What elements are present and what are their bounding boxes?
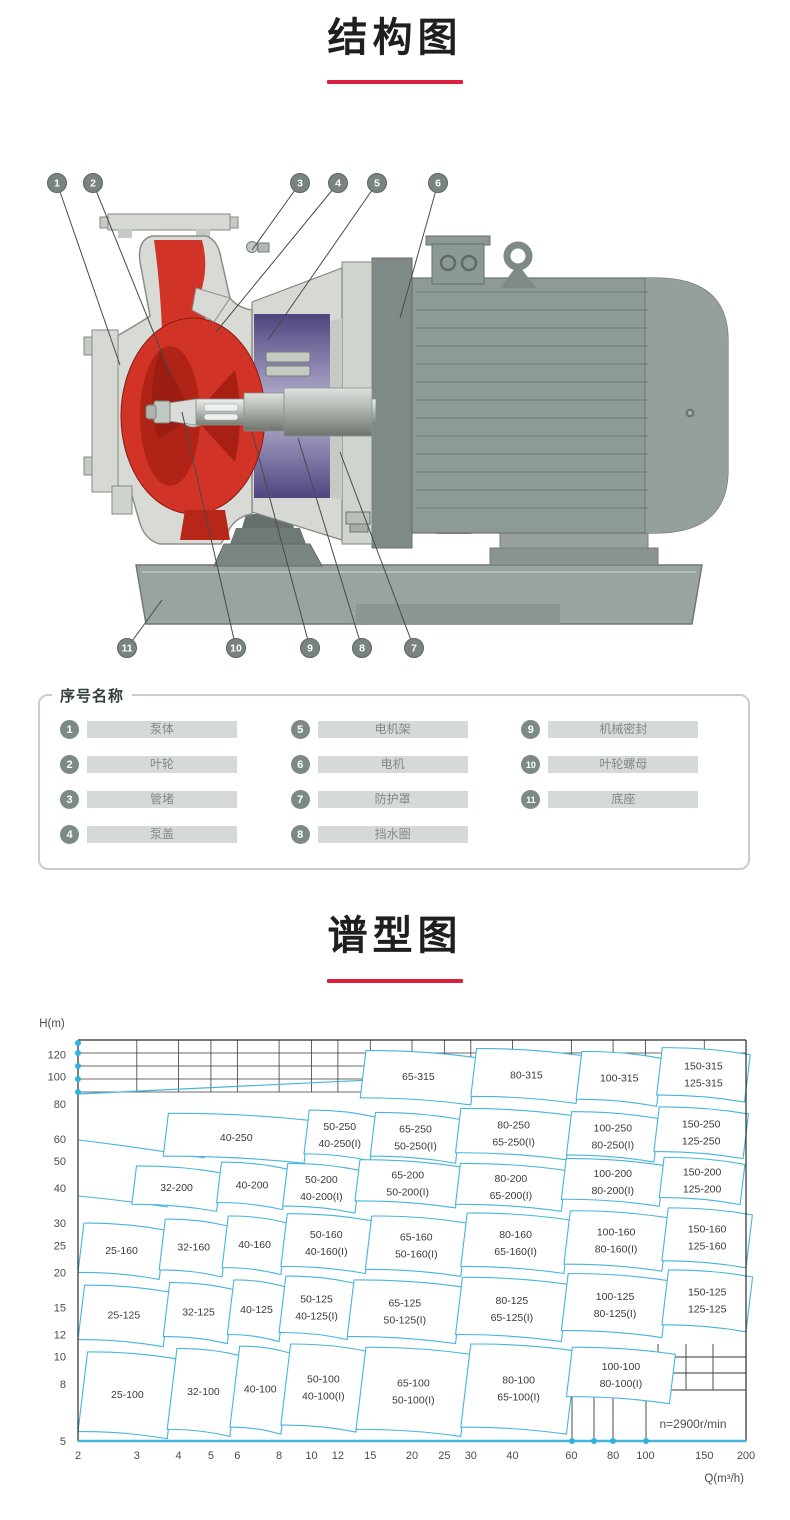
region-label: 40-100 [244, 1384, 277, 1396]
legend-item-name: 挡水圈 [318, 826, 468, 843]
region-label: 125-250 [682, 1135, 721, 1147]
region-label: 40-250(I) [318, 1138, 361, 1150]
x-tick-label: 8 [276, 1450, 282, 1462]
region-label: 80-160(I) [595, 1243, 638, 1255]
region-label: 100-315 [600, 1072, 639, 1084]
region-label: 32-100 [187, 1386, 220, 1398]
region-label: 80-250(I) [591, 1139, 634, 1151]
pump-model-region [456, 1108, 572, 1159]
callout-number: 3 [297, 178, 303, 190]
legend-item: 2叶轮 [60, 751, 265, 778]
region-label: 25-100 [111, 1389, 144, 1401]
region-label: 40-200 [236, 1179, 269, 1191]
pump-model-region [456, 1277, 569, 1341]
y-tick-label: 40 [54, 1183, 66, 1195]
legend-item-number: 3 [60, 790, 79, 809]
motor-body [412, 278, 728, 533]
x-tick-label: 4 [175, 1450, 181, 1462]
structure-title-underline [327, 80, 463, 84]
pump-model-region [662, 1208, 752, 1268]
x-tick-label: 100 [636, 1450, 654, 1462]
legend-item-name: 泵体 [87, 721, 237, 738]
region-label: 80-200(I) [591, 1185, 634, 1197]
callout-number: 9 [307, 643, 313, 655]
pump-model-region [461, 1344, 577, 1434]
region-label: 40-160(I) [305, 1246, 348, 1258]
pump-model-region [304, 1110, 376, 1161]
legend-item: 7防护罩 [291, 786, 496, 813]
page: 结构图 [0, 0, 790, 1520]
pump-model-region [561, 1274, 668, 1338]
region-label: 125-125 [688, 1303, 727, 1315]
region-label: 65-160 [400, 1232, 433, 1244]
y-tick-label: 5 [60, 1436, 66, 1448]
region-label: 50-100 [307, 1374, 340, 1386]
region-label: 100-100 [602, 1361, 641, 1373]
region-label: 40-250 [220, 1132, 253, 1144]
legend-item: 3管堵 [60, 786, 265, 813]
base-plate [136, 565, 702, 624]
region-label: 50-125 [300, 1293, 333, 1305]
y-tick-label: 8 [60, 1379, 66, 1391]
region-label: 65-250(I) [492, 1137, 535, 1149]
region-label: 50-200 [305, 1174, 338, 1186]
callout-number: 1 [54, 178, 60, 190]
legend-item: 11底座 [521, 786, 726, 813]
axis-dot [75, 1040, 81, 1046]
suction-flange [92, 330, 118, 492]
axis-dot [643, 1438, 649, 1444]
speed-annotation: n=2900r/min [659, 1417, 726, 1431]
y-axis-title: H(m) [39, 1018, 65, 1030]
callout-leader-line [252, 183, 300, 250]
region-label: 50-160 [310, 1229, 343, 1241]
callout-number: 11 [121, 643, 132, 655]
axis-dot [569, 1438, 575, 1444]
region-label: 80-100 [502, 1375, 535, 1387]
region-label: 125-160 [688, 1240, 727, 1252]
x-tick-label: 80 [607, 1450, 619, 1462]
y-tick-label: 15 [54, 1302, 66, 1314]
chart-section-title: 谱型图 [0, 916, 790, 956]
region-label: 25-160 [105, 1245, 138, 1257]
y-tick-label: 12 [54, 1330, 66, 1342]
axis-dot [75, 1089, 81, 1095]
legend-item-number: 9 [521, 720, 540, 739]
legend-item-number: 10 [521, 755, 540, 774]
pump-model-region [283, 1163, 360, 1213]
y-tick-label: 100 [48, 1072, 66, 1084]
x-tick-label: 60 [565, 1450, 577, 1462]
axis-dot [75, 1050, 81, 1056]
x-tick-label: 30 [465, 1450, 477, 1462]
pump-model-region [566, 1347, 675, 1403]
discharge-flange [108, 214, 230, 230]
pump-model-region [566, 1112, 659, 1162]
x-tick-label: 6 [234, 1450, 240, 1462]
legend-item-name: 电机架 [318, 721, 468, 738]
legend-item-number: 5 [291, 720, 310, 739]
legend-item-number: 2 [60, 755, 79, 774]
legend-item-name: 管堵 [87, 791, 237, 808]
region-label: 32-160 [177, 1242, 210, 1254]
pump-model-region [461, 1213, 571, 1274]
region-label: 150-160 [688, 1223, 727, 1235]
pump-selection-chart: 2345681012152025304060801001502005810121… [0, 1005, 790, 1510]
callout-number: 10 [230, 643, 242, 655]
parts-legend: 序号名称 1泵体2叶轮3管堵4泵盖5电机架6电机7防护罩8挡水圈9机械密封10叶… [38, 694, 750, 870]
x-tick-label: 3 [134, 1450, 140, 1462]
region-label: 80-250 [497, 1120, 530, 1132]
region-label: 65-125(I) [491, 1312, 534, 1324]
axis-dot [75, 1076, 81, 1082]
y-tick-label: 80 [54, 1099, 66, 1111]
motor-front-ring [372, 258, 412, 548]
region-label: 50-250 [323, 1121, 356, 1133]
legend-item-number: 11 [521, 790, 540, 809]
pump-model-region [659, 1157, 745, 1204]
structure-section-title: 结构图 [0, 18, 790, 58]
axis-dot [75, 1063, 81, 1069]
pump-model-region [279, 1276, 354, 1339]
region-label: 65-100 [397, 1377, 430, 1389]
pump-model-region [564, 1211, 668, 1271]
legend-item-number: 7 [291, 790, 310, 809]
region-label: 40-125 [240, 1304, 273, 1316]
callout-number: 2 [90, 178, 96, 190]
region-label: 100-160 [597, 1226, 636, 1238]
pump-model-region [347, 1280, 462, 1344]
y-tick-label: 10 [54, 1352, 66, 1364]
pump-structure-diagram: 1234567891011 [0, 160, 790, 680]
region-label: 80-315 [510, 1070, 543, 1082]
pump-model-region [281, 1344, 366, 1432]
legend-item-number: 1 [60, 720, 79, 739]
region-label: 65-100(I) [497, 1392, 540, 1404]
legend-item: 8挡水圈 [291, 821, 496, 848]
region-label: 125-200 [683, 1184, 722, 1196]
region-label: 65-250 [399, 1123, 432, 1135]
legend-grid: 1泵体2叶轮3管堵4泵盖5电机架6电机7防护罩8挡水圈9机械密封10叶轮螺母11… [40, 696, 748, 860]
region-label: 65-315 [402, 1071, 435, 1083]
region-label: 32-125 [182, 1307, 215, 1319]
x-tick-label: 15 [364, 1450, 376, 1462]
y-tick-label: 30 [54, 1218, 66, 1230]
x-tick-label: 25 [438, 1450, 450, 1462]
x-tick-label: 12 [332, 1450, 344, 1462]
region-label: 65-200(I) [490, 1190, 533, 1202]
legend-item-number: 6 [291, 755, 310, 774]
callout-number: 8 [359, 643, 365, 655]
legend-item-name: 防护罩 [318, 791, 468, 808]
legend-item: 9机械密封 [521, 716, 726, 743]
axis-dot [591, 1438, 597, 1444]
lifting-eye [500, 245, 536, 288]
pipe-plug [247, 242, 270, 253]
chart-title-underline [327, 979, 463, 983]
y-tick-label: 50 [54, 1156, 66, 1168]
region-label: 32-200 [160, 1182, 193, 1194]
legend-item: 6电机 [291, 751, 496, 778]
callout-number: 6 [435, 178, 441, 190]
region-label: 50-100(I) [392, 1394, 435, 1406]
region-label: 100-200 [593, 1168, 632, 1180]
legend-item-number: 8 [291, 825, 310, 844]
legend-item-name: 叶轮 [87, 756, 237, 773]
pump-model-region [561, 1159, 664, 1207]
region-label: 50-200(I) [386, 1186, 429, 1198]
region-label: 50-125(I) [383, 1314, 426, 1326]
region-label: 40-100(I) [302, 1391, 345, 1403]
axis-dot [610, 1438, 616, 1444]
region-label: 40-160 [238, 1239, 271, 1251]
y-tick-label: 20 [54, 1267, 66, 1279]
pump-model-region [657, 1048, 751, 1102]
legend-item-name: 电机 [318, 756, 468, 773]
x-tick-label: 20 [406, 1450, 418, 1462]
region-label: 40-200(I) [300, 1191, 343, 1203]
legend-item-number: 4 [60, 825, 79, 844]
y-tick-label: 25 [54, 1240, 66, 1252]
callout-number: 5 [374, 178, 380, 190]
x-axis-title: Q(m³/h) [704, 1473, 744, 1485]
pump-model-region [456, 1163, 567, 1211]
pump-model-region [370, 1112, 461, 1163]
region-label: 50-250(I) [394, 1140, 437, 1152]
x-tick-label: 200 [737, 1450, 755, 1462]
pump-model-region [355, 1160, 460, 1208]
region-label: 65-200 [391, 1169, 424, 1181]
region-label: 125-315 [684, 1077, 723, 1089]
pump-model-region [662, 1270, 753, 1332]
region-label: 80-160 [499, 1229, 532, 1241]
legend-item: 4泵盖 [60, 821, 265, 848]
legend-title: 序号名称 [52, 685, 132, 706]
region-label: 80-100(I) [600, 1378, 643, 1390]
legend-item: 5电机架 [291, 716, 496, 743]
legend-item-name: 叶轮螺母 [548, 756, 698, 773]
region-label: 65-160(I) [494, 1246, 537, 1258]
x-tick-label: 40 [506, 1450, 518, 1462]
region-label: 150-250 [682, 1118, 721, 1130]
region-label: 100-125 [596, 1291, 635, 1303]
region-label: 150-200 [683, 1167, 722, 1179]
x-tick-label: 2 [75, 1450, 81, 1462]
pump-model-region [654, 1107, 749, 1159]
region-label: 100-250 [594, 1122, 633, 1134]
legend-item-name: 机械密封 [548, 721, 698, 738]
region-label: 25-125 [108, 1309, 141, 1321]
callout-number: 7 [411, 643, 417, 655]
region-label: 40-125(I) [295, 1310, 338, 1322]
x-tick-label: 5 [208, 1450, 214, 1462]
region-label: 65-125 [388, 1297, 421, 1309]
legend-item-name: 底座 [548, 791, 698, 808]
callout-number: 4 [335, 178, 341, 190]
region-label: 80-125(I) [594, 1308, 637, 1320]
region-label: 80-200 [495, 1173, 528, 1185]
pump-model-region [356, 1347, 471, 1436]
region-label: 80-125 [496, 1295, 529, 1307]
pump-model-region [281, 1214, 372, 1274]
pump-model-region [365, 1216, 467, 1276]
legend-item-name: 泵盖 [87, 826, 237, 843]
motor-terminal-box [426, 236, 490, 284]
y-tick-label: 60 [54, 1134, 66, 1146]
y-tick-label: 120 [48, 1050, 66, 1062]
x-tick-label: 150 [695, 1450, 713, 1462]
region-label: 50-160(I) [395, 1249, 438, 1261]
discharge-passage [154, 240, 206, 330]
legend-item: 1泵体 [60, 716, 265, 743]
region-label: 150-315 [684, 1060, 723, 1072]
x-tick-label: 10 [305, 1450, 317, 1462]
region-label: 150-125 [688, 1286, 727, 1298]
legend-item: 10叶轮螺母 [521, 751, 726, 778]
